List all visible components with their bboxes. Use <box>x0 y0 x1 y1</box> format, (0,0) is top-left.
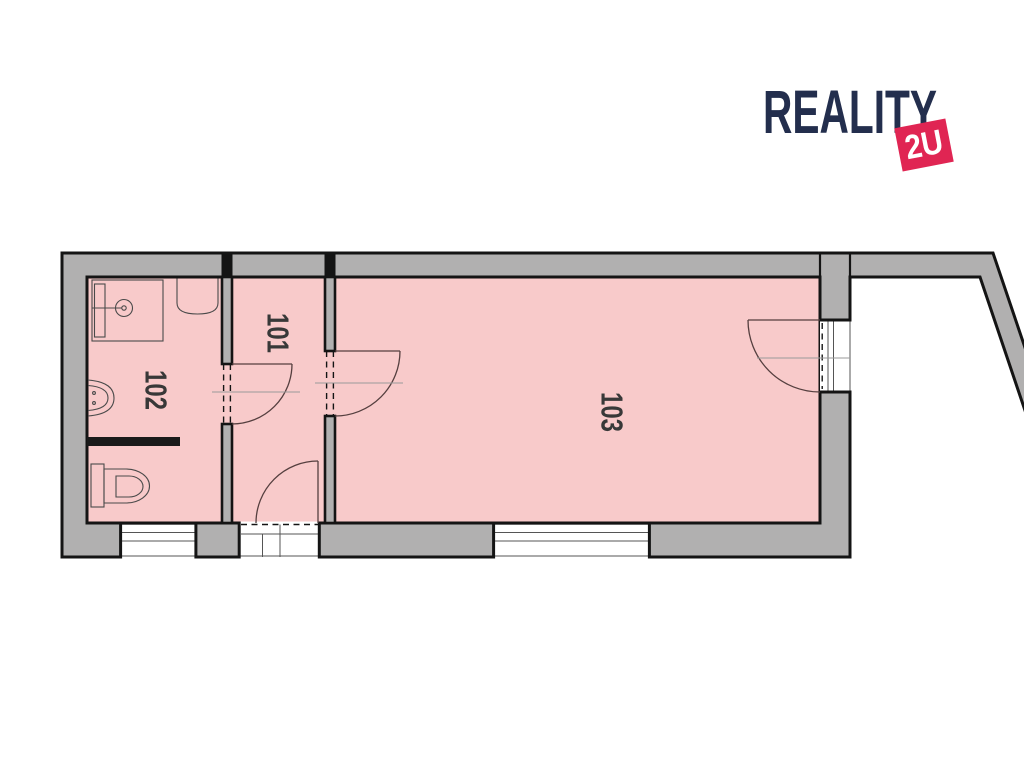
wall-wc-partition <box>87 437 180 446</box>
wall-102-101-upper <box>222 277 232 364</box>
logo: REALITY 2U <box>763 78 954 172</box>
floorplan-page: 101 102 103 REALITY 2U <box>0 0 1024 774</box>
room-label-103: 103 <box>595 392 630 432</box>
room-label-102: 102 <box>139 370 174 410</box>
wall-101-103-lower <box>325 416 335 523</box>
wall-junction-mark <box>222 252 233 278</box>
wall-junction-mark <box>325 252 336 278</box>
window-south-right <box>494 522 650 559</box>
floor-plan-svg: 101 102 103 REALITY 2U <box>0 0 1024 774</box>
wall-102-101-lower <box>222 424 232 523</box>
logo-badge-text: 2U <box>902 123 947 168</box>
wall-101-103-upper <box>325 277 335 351</box>
room-label-101: 101 <box>261 313 296 353</box>
window-south-left <box>121 522 196 559</box>
